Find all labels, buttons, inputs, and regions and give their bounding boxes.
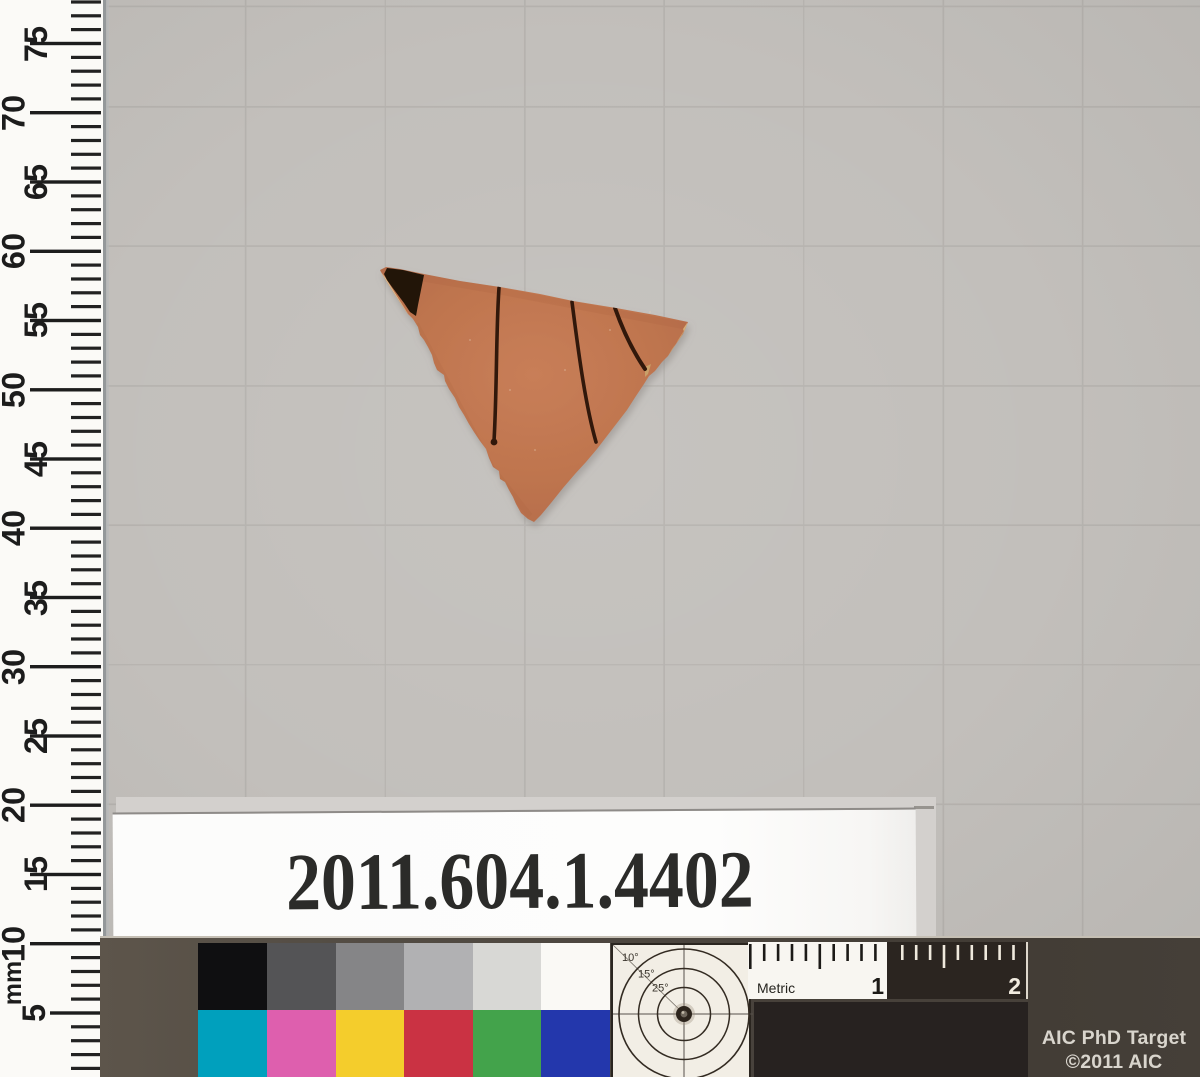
svg-text:20: 20 xyxy=(0,787,32,823)
svg-text:mm: mm xyxy=(0,961,27,1005)
svg-text:2: 2 xyxy=(1008,973,1021,999)
svg-text:60: 60 xyxy=(0,233,32,269)
svg-text:10°: 10° xyxy=(622,952,639,964)
svg-text:25: 25 xyxy=(18,718,54,754)
svg-text:55: 55 xyxy=(18,302,54,338)
svg-text:25°: 25° xyxy=(652,983,669,995)
svg-text:15: 15 xyxy=(18,856,54,892)
svg-text:35: 35 xyxy=(18,580,54,616)
svg-text:15°: 15° xyxy=(638,969,655,981)
svg-text:Metric: Metric xyxy=(757,980,795,996)
svg-text:30: 30 xyxy=(0,649,32,685)
svg-text:75: 75 xyxy=(18,26,54,62)
svg-text:10: 10 xyxy=(0,926,32,962)
svg-text:65: 65 xyxy=(18,164,54,200)
svg-text:50: 50 xyxy=(0,372,32,408)
svg-text:40: 40 xyxy=(0,510,32,546)
svg-text:45: 45 xyxy=(18,441,54,477)
svg-text:70: 70 xyxy=(0,95,32,131)
svg-text:1: 1 xyxy=(871,973,884,999)
svg-text:5: 5 xyxy=(16,1004,52,1022)
